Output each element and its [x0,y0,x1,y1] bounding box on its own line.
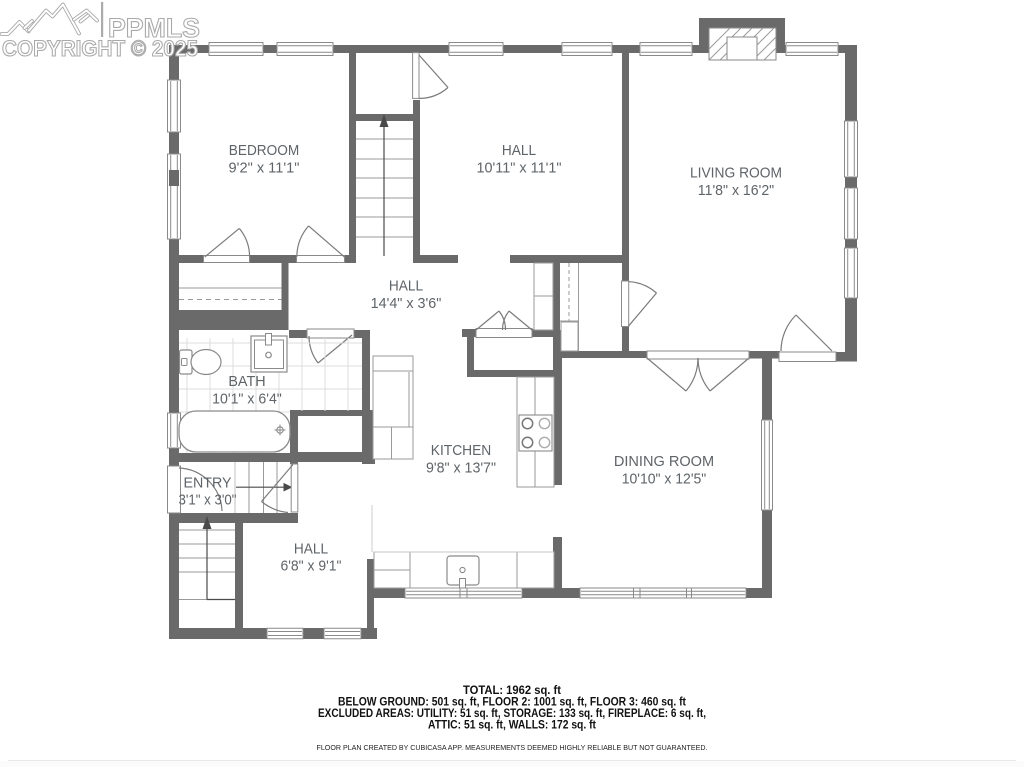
svg-text:BATH: BATH [228,373,265,390]
svg-text:HALL: HALL [502,142,536,159]
svg-text:BELOW GROUND: 501 sq. ft, FLOO: BELOW GROUND: 501 sq. ft, FLOOR 2: 1001 … [338,697,686,709]
svg-text:10'11" x 11'1": 10'11" x 11'1" [477,159,562,176]
svg-text:HALL: HALL [294,540,328,557]
svg-text:COPYRIGHT © 2025: COPYRIGHT © 2025 [2,36,198,61]
svg-text:TOTAL: 1962 sq. ft: TOTAL: 1962 sq. ft [463,685,561,697]
svg-text:HALL: HALL [389,278,423,295]
svg-text:DINING ROOM: DINING ROOM [614,453,714,470]
svg-text:FLOOR PLAN CREATED BY CUBICASA: FLOOR PLAN CREATED BY CUBICASA APP. MEAS… [317,743,708,752]
svg-text:EXCLUDED AREAS: UTILITY: 51 sq: EXCLUDED AREAS: UTILITY: 51 sq. ft, STOR… [318,708,706,720]
svg-text:14'4" x 3'6": 14'4" x 3'6" [371,295,442,312]
svg-text:ENTRY: ENTRY [184,474,232,491]
svg-text:6'8" x 9'1": 6'8" x 9'1" [281,558,342,575]
svg-text:LIVING ROOM: LIVING ROOM [690,165,782,182]
svg-text:KITCHEN: KITCHEN [431,442,492,459]
svg-text:9'8" x 13'7": 9'8" x 13'7" [426,459,496,476]
svg-text:9'2" x 11'1": 9'2" x 11'1" [229,159,300,176]
svg-text:3'1" x 3'0": 3'1" x 3'0" [179,492,237,509]
svg-text:BEDROOM: BEDROOM [229,142,299,159]
svg-text:ATTIC: 51 sq. ft, WALLS: 172 s: ATTIC: 51 sq. ft, WALLS: 172 sq. ft [428,719,596,731]
svg-text:10'1" x 6'4": 10'1" x 6'4" [212,390,282,407]
svg-text:11'8" x 16'2": 11'8" x 16'2" [698,182,774,199]
svg-text:10'10" x 12'5": 10'10" x 12'5" [622,470,707,487]
